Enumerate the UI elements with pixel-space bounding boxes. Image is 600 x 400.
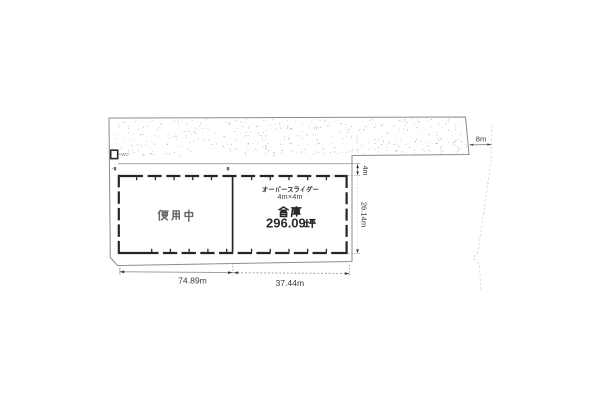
svg-text:37.44m: 37.44m	[275, 278, 304, 288]
svg-text:74.89m: 74.89m	[178, 275, 207, 285]
svg-text:4m×4m: 4m×4m	[278, 194, 303, 201]
svg-text:8m: 8m	[476, 134, 487, 143]
svg-text:26.14m: 26.14m	[360, 202, 369, 227]
svg-text:WC: WC	[121, 152, 128, 157]
svg-text:296.09: 296.09	[266, 215, 306, 230]
svg-text:4m: 4m	[361, 166, 368, 176]
